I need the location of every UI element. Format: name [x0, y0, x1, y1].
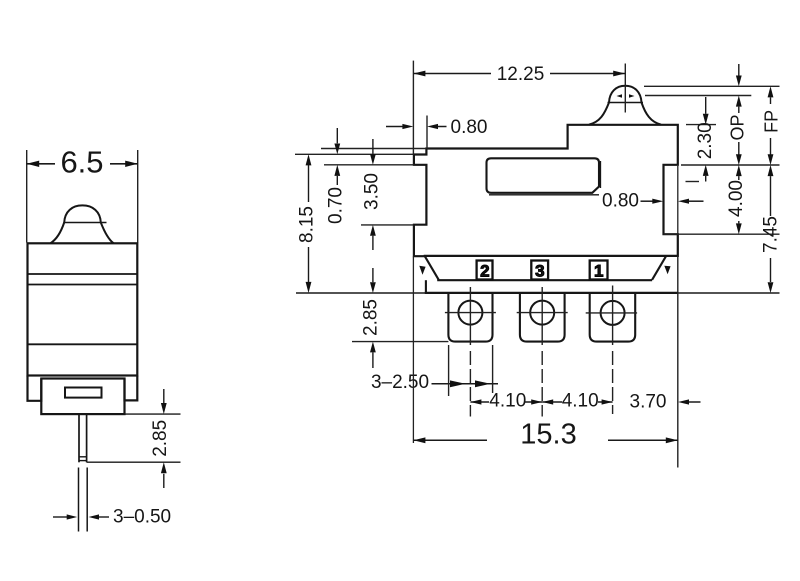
svg-text:OP: OP	[728, 114, 748, 140]
svg-text:3–2.50: 3–2.50	[371, 372, 429, 393]
svg-text:FP: FP	[762, 110, 782, 133]
svg-text:4.00: 4.00	[726, 180, 747, 217]
svg-text:3: 3	[535, 262, 544, 281]
svg-text:0.70: 0.70	[326, 187, 347, 224]
svg-text:8.15: 8.15	[296, 206, 317, 243]
svg-text:0.80: 0.80	[451, 117, 488, 138]
svg-text:4.10: 4.10	[562, 391, 599, 412]
svg-text:4.10: 4.10	[489, 391, 526, 412]
svg-text:3.50: 3.50	[362, 173, 383, 210]
svg-text:15.3: 15.3	[520, 419, 576, 451]
svg-text:2.30: 2.30	[695, 122, 716, 159]
svg-text:0.80: 0.80	[602, 191, 639, 212]
svg-text:6.5: 6.5	[60, 145, 103, 180]
svg-text:12.25: 12.25	[497, 64, 545, 85]
svg-text:2.85: 2.85	[150, 420, 171, 457]
svg-text:3–0.50: 3–0.50	[113, 507, 171, 528]
svg-text:7.45: 7.45	[761, 216, 782, 253]
svg-text:1: 1	[594, 262, 603, 281]
svg-text:3.70: 3.70	[630, 392, 667, 413]
svg-text:2.85: 2.85	[361, 299, 382, 336]
svg-text:2: 2	[480, 262, 489, 281]
